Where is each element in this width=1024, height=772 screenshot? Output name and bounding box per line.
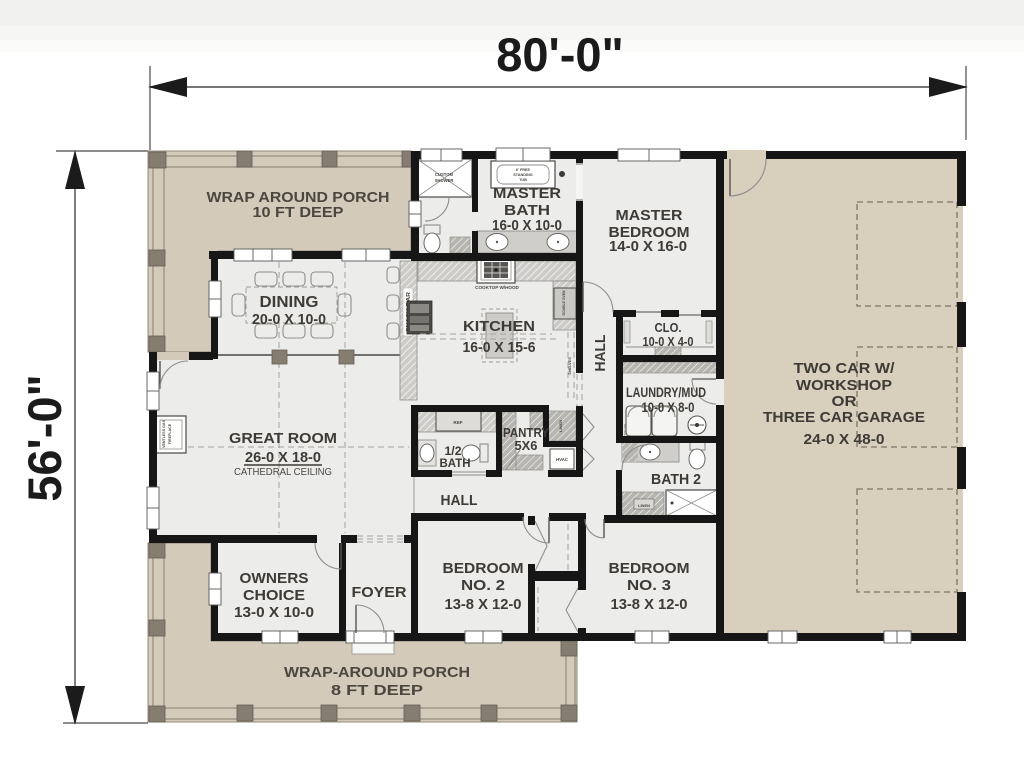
svg-text:16-0 X 10-0: 16-0 X 10-0: [492, 218, 562, 234]
svg-text:CUSTOM: CUSTOM: [435, 172, 454, 177]
svg-text:NO. 3: NO. 3: [627, 577, 671, 594]
svg-text:OR: OR: [832, 393, 857, 410]
svg-text:56'-0": 56'-0": [18, 374, 71, 502]
svg-text:DOUBLE OVEN: DOUBLE OVEN: [562, 290, 566, 315]
svg-text:FIREPLACE: FIREPLACE: [168, 423, 172, 444]
svg-text:BATH: BATH: [440, 458, 471, 470]
svg-text:CLO.: CLO.: [655, 320, 682, 335]
svg-text:HVAC: HVAC: [556, 457, 569, 462]
svg-text:26-0 X 18-0: 26-0 X 18-0: [245, 450, 321, 466]
svg-text:8 FT DEEP: 8 FT DEEP: [331, 682, 423, 699]
svg-text:BATH: BATH: [504, 202, 550, 219]
svg-text:HALL: HALL: [441, 492, 478, 509]
svg-text:13-8 X 12-0: 13-8 X 12-0: [445, 597, 522, 613]
svg-text:HALL: HALL: [592, 335, 609, 372]
svg-text:MASTER: MASTER: [616, 207, 683, 224]
svg-text:SHELVES: SHELVES: [568, 357, 572, 375]
svg-text:NO. 2: NO. 2: [461, 577, 505, 594]
svg-text:BEDROOM: BEDROOM: [609, 560, 690, 577]
svg-text:10-0 X 8-0: 10-0 X 8-0: [642, 400, 695, 415]
svg-text:KITCHEN: KITCHEN: [463, 319, 535, 335]
svg-text:5X6: 5X6: [515, 438, 538, 453]
svg-text:1/2: 1/2: [445, 446, 462, 458]
svg-text:20-0 X 10-0: 20-0 X 10-0: [252, 311, 326, 328]
svg-text:LAUNDRY/MUD: LAUNDRY/MUD: [626, 384, 706, 400]
svg-text:STANDING: STANDING: [513, 173, 533, 177]
svg-text:BATH 2: BATH 2: [651, 471, 701, 488]
svg-text:OWNERS: OWNERS: [240, 570, 309, 587]
svg-text:DINING: DINING: [260, 294, 319, 311]
svg-text:TUB: TUB: [519, 178, 527, 182]
svg-text:MASTER: MASTER: [493, 185, 561, 202]
svg-text:LINEN: LINEN: [638, 503, 650, 508]
svg-text:BEDROOM: BEDROOM: [443, 560, 524, 577]
svg-text:80'-0": 80'-0": [496, 28, 624, 81]
svg-text:CHOICE: CHOICE: [243, 587, 305, 604]
svg-text:GREAT ROOM: GREAT ROOM: [229, 431, 337, 447]
svg-text:14-0 X 16-0: 14-0 X 16-0: [609, 239, 687, 255]
svg-text:TWO CAR W/: TWO CAR W/: [794, 360, 896, 377]
svg-text:WRAP-AROUND PORCH: WRAP-AROUND PORCH: [284, 664, 470, 681]
svg-text:WORKSHOP: WORKSHOP: [796, 377, 892, 394]
svg-text:FOYER: FOYER: [352, 584, 407, 601]
svg-text:LINEN: LINEN: [558, 420, 563, 432]
svg-text:CATHEDRAL CEILING: CATHEDRAL CEILING: [234, 467, 332, 478]
svg-text:6' FREE: 6' FREE: [516, 168, 531, 172]
svg-text:COOKTOP W/HOOD: COOKTOP W/HOOD: [475, 285, 519, 290]
svg-text:24-0 X 48-0: 24-0 X 48-0: [804, 431, 885, 448]
svg-text:10-0 X 4-0: 10-0 X 4-0: [643, 334, 694, 349]
svg-text:VENTLESS GAS: VENTLESS GAS: [162, 420, 166, 448]
svg-text:16-0 X 15-6: 16-0 X 15-6: [463, 340, 536, 356]
svg-text:REF: REF: [453, 420, 462, 425]
svg-text:10 FT DEEP: 10 FT DEEP: [253, 204, 344, 221]
svg-text:13-0 X 10-0: 13-0 X 10-0: [234, 605, 314, 621]
svg-text:THREE CAR GARAGE: THREE CAR GARAGE: [763, 409, 925, 426]
svg-text:SHOWER: SHOWER: [435, 178, 454, 183]
svg-text:13-8 X 12-0: 13-8 X 12-0: [611, 597, 688, 613]
